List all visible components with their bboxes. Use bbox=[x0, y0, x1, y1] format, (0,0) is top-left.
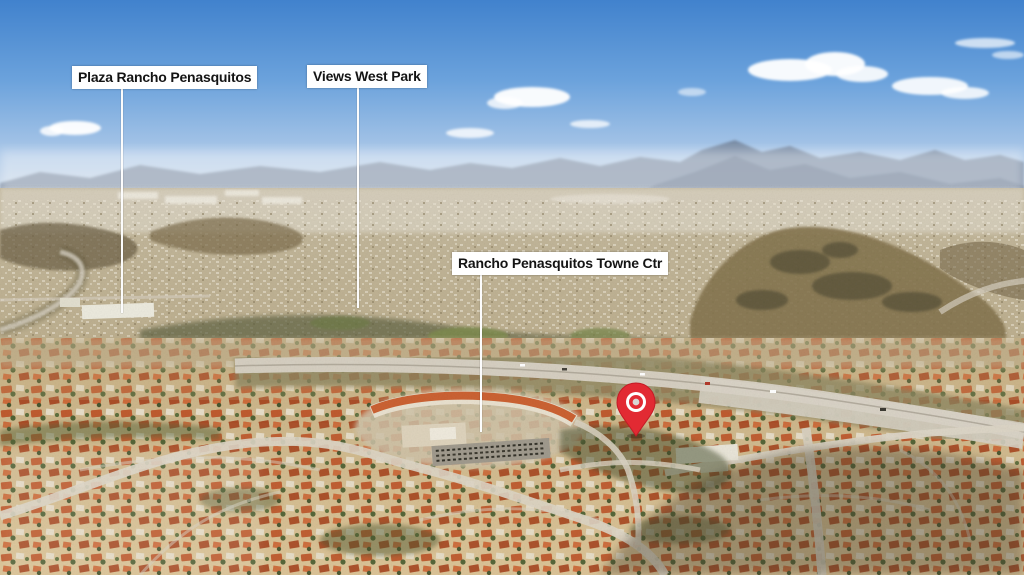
aerial-photo: Plaza Rancho Penasquitos Views West Park… bbox=[0, 0, 1024, 575]
grain-texture bbox=[0, 185, 1024, 575]
leader-line-towne-ctr bbox=[480, 275, 482, 432]
label-rancho-penasquitos-towne-ctr: Rancho Penasquitos Towne Ctr bbox=[452, 252, 668, 275]
location-pin-icon bbox=[614, 381, 658, 439]
label-views-west-park: Views West Park bbox=[307, 65, 427, 88]
leader-line-views-west-park bbox=[357, 87, 359, 308]
label-plaza-rancho-penasquitos: Plaza Rancho Penasquitos bbox=[72, 66, 257, 89]
leader-line-plaza bbox=[121, 89, 123, 313]
